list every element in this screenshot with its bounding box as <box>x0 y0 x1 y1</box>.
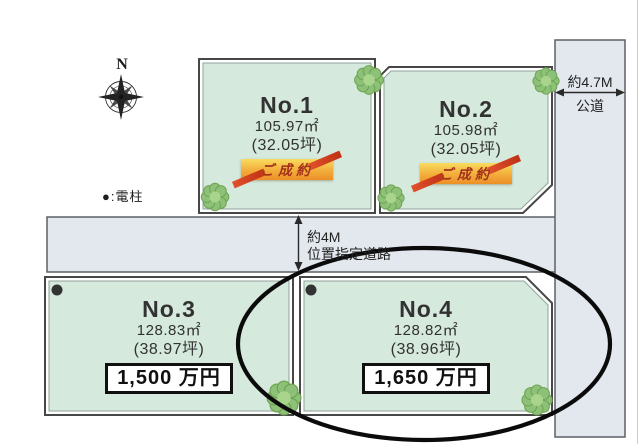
bush-icon <box>355 66 384 95</box>
scan-edge-line <box>637 0 638 444</box>
designated-road-area <box>47 217 557 272</box>
lot-area-sqm: 105.97㎡ <box>199 118 375 136</box>
electric-pole-legend: ●:電柱 <box>102 186 143 205</box>
lot-no1-info: No.1 105.97㎡ (32.05坪) ご成約 <box>199 93 375 180</box>
lot-number: No.4 <box>300 297 552 322</box>
site-plan: N ●:電柱 約4.7M 公道 約4M 位置指定道路 No.1 105.97㎡ … <box>0 0 640 444</box>
lot-area-tsubo: (32.05坪) <box>199 136 375 155</box>
lot-number: No.1 <box>199 93 375 118</box>
lot-area-sqm: 128.82㎡ <box>300 322 552 340</box>
sold-banner: ご成約 <box>241 159 333 180</box>
price-tag: 1,500 万円 <box>105 363 233 394</box>
compass-icon <box>98 74 145 121</box>
lot-area-sqm: 105.98㎡ <box>380 122 552 140</box>
electric-pole-dot <box>306 285 317 296</box>
sold-banner: ご成約 <box>420 163 512 184</box>
lot-area-tsubo: (32.05坪) <box>380 140 552 159</box>
lot-no4-info: No.4 128.82㎡ (38.96坪) 1,650 万円 <box>300 297 552 394</box>
sold-banner-label: ご成約 <box>260 163 314 177</box>
price-tag: 1,650 万円 <box>362 363 490 394</box>
designated-road-width-label: 約4M <box>307 229 340 245</box>
public-road-width-label: 約4.7M <box>553 74 627 90</box>
electric-pole-dot <box>52 285 63 296</box>
bush-icon <box>201 183 229 211</box>
bush-icon <box>378 185 404 211</box>
lot-number: No.2 <box>380 97 552 122</box>
lot-area-tsubo: (38.96坪) <box>300 340 552 359</box>
lot-no3-info: No.3 128.83㎡ (38.97坪) 1,500 万円 <box>45 297 293 394</box>
sold-banner-label: ご成約 <box>439 167 493 181</box>
public-road-name: 公道 <box>553 98 627 114</box>
lot-no2-info: No.2 105.98㎡ (32.05坪) ご成約 <box>380 97 552 184</box>
lot-number: No.3 <box>45 297 293 322</box>
compass-north-label: N <box>112 56 132 74</box>
lot-area-sqm: 128.83㎡ <box>45 322 293 340</box>
designated-road-name: 位置指定道路 <box>307 246 391 262</box>
lot-area-tsubo: (38.97坪) <box>45 340 293 359</box>
